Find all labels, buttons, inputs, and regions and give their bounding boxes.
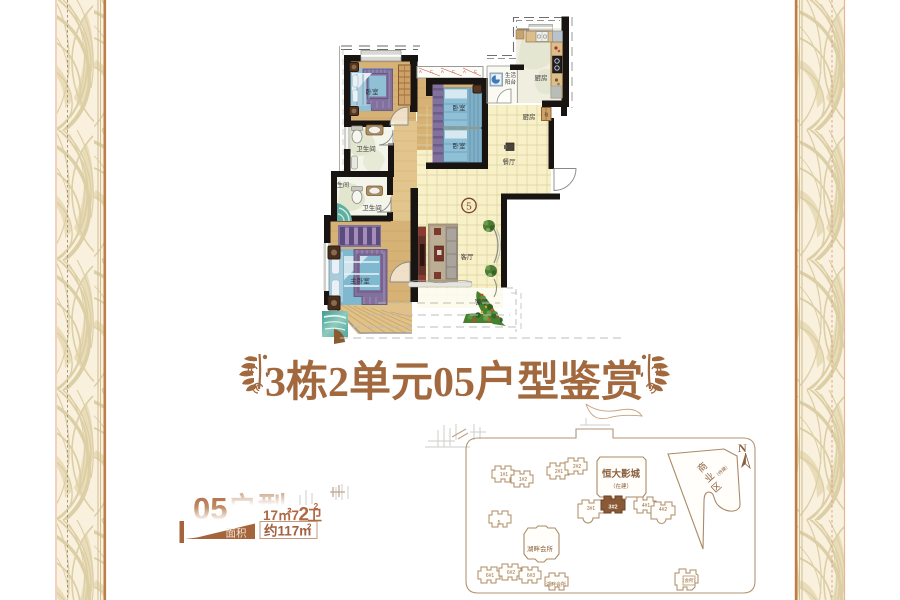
svg-text:卫生间: 卫生间 bbox=[362, 203, 382, 212]
svg-text:湖畔会所: 湖畔会所 bbox=[527, 544, 554, 553]
svg-text:2#1: 2#1 bbox=[555, 469, 564, 475]
svg-text:卧室: 卧室 bbox=[366, 87, 380, 96]
svg-text:鞋: 鞋 bbox=[545, 111, 549, 117]
svg-text:4#1: 4#1 bbox=[642, 503, 651, 509]
svg-text:2#2: 2#2 bbox=[573, 464, 582, 470]
svg-text:恒大影城: 恒大影城 bbox=[602, 468, 641, 480]
svg-text:客厅: 客厅 bbox=[475, 297, 489, 306]
svg-text:1#1: 1#1 bbox=[500, 472, 509, 478]
svg-text:A: A bbox=[463, 69, 466, 74]
svg-text:3栋2单元05户型鉴赏: 3栋2单元05户型鉴赏 bbox=[265, 359, 643, 406]
svg-text:厨房: 厨房 bbox=[535, 73, 548, 82]
svg-text:（会所）: （会所） bbox=[680, 577, 698, 584]
svg-text:C: C bbox=[474, 69, 477, 74]
svg-text:1#2: 1#2 bbox=[519, 477, 528, 483]
svg-text:生间: 生间 bbox=[337, 181, 349, 189]
svg-text:2: 2 bbox=[314, 501, 319, 511]
svg-text:主卧室: 主卧室 bbox=[350, 276, 370, 285]
svg-text:N: N bbox=[738, 441, 747, 455]
svg-text:（在建）: （在建） bbox=[610, 482, 632, 490]
svg-text:C: C bbox=[430, 69, 433, 74]
svg-text:2: 2 bbox=[307, 523, 312, 532]
svg-text:卧室: 卧室 bbox=[453, 103, 467, 112]
svg-text:面积: 面积 bbox=[226, 528, 247, 540]
svg-text:6#3: 6#3 bbox=[527, 573, 536, 579]
svg-text:生活: 生活 bbox=[505, 71, 517, 79]
svg-text:6#1: 6#1 bbox=[486, 573, 495, 579]
svg-text:3#2: 3#2 bbox=[608, 505, 617, 511]
svg-text:A: A bbox=[419, 69, 422, 74]
svg-text:4#2: 4#2 bbox=[659, 507, 668, 513]
svg-text:C: C bbox=[452, 69, 455, 74]
svg-text:客厅: 客厅 bbox=[461, 252, 475, 261]
svg-text:17㎡7: 17㎡7 bbox=[263, 507, 299, 523]
svg-text:05: 05 bbox=[193, 491, 227, 526]
svg-text:A: A bbox=[441, 69, 444, 74]
svg-text:5: 5 bbox=[466, 201, 472, 213]
svg-text:6#2: 6#2 bbox=[507, 570, 516, 576]
svg-text:餐厅: 餐厅 bbox=[503, 157, 517, 166]
svg-text:5: 5 bbox=[498, 520, 501, 526]
svg-text:3#1: 3#1 bbox=[587, 506, 596, 512]
svg-text:卫生间: 卫生间 bbox=[356, 144, 376, 153]
svg-text:厨房: 厨房 bbox=[523, 112, 536, 121]
svg-text:卧室: 卧室 bbox=[453, 141, 467, 150]
svg-text:约117m: 约117m bbox=[264, 523, 311, 539]
svg-text:湖畔会所: 湖畔会所 bbox=[546, 581, 566, 588]
svg-text:阳台: 阳台 bbox=[505, 78, 517, 86]
